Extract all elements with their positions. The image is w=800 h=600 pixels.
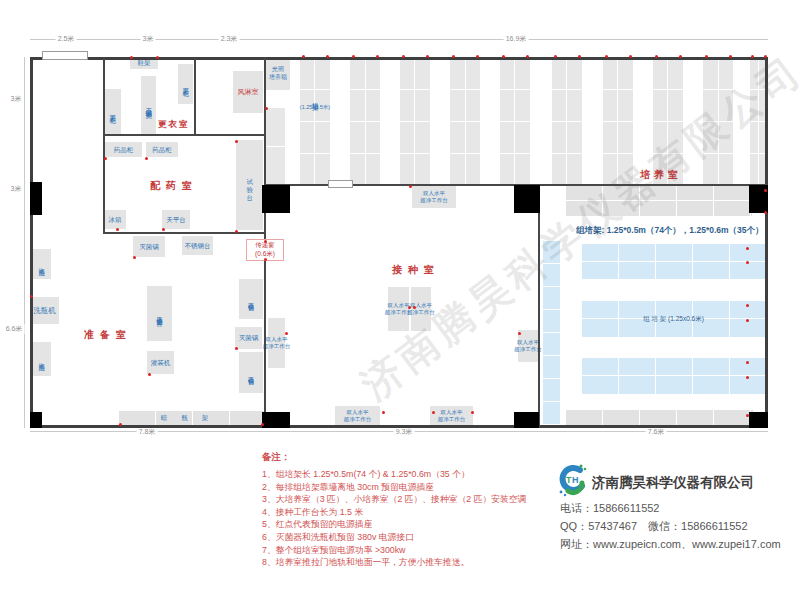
power-outlet-dot (746, 319, 749, 322)
power-outlet-dot (148, 373, 151, 376)
power-outlet-dot (746, 247, 749, 250)
company-logo-icon: T H (556, 462, 588, 498)
dim-bottom-1: 7.8米 (137, 427, 158, 437)
power-outlet-dot (729, 55, 732, 58)
company-name: 济南腾昊科学仪器有限公司 (592, 474, 754, 492)
note-item: 8、培养室推拉门地轨和地面一平，方便小推车推送。 (262, 556, 552, 569)
room-label-dispensing: 配药室 (150, 179, 198, 193)
power-outlet-dot (679, 55, 682, 58)
power-outlet-dot (471, 411, 474, 414)
outer-wall (30, 57, 768, 428)
power-outlet-dot (764, 189, 767, 192)
room-label-inoculation: 接种室 (392, 263, 440, 277)
dim-top-1: 2.5米 (56, 34, 77, 44)
power-outlet-dot (382, 411, 385, 414)
power-outlet-dot (235, 230, 238, 233)
power-outlet-dot (119, 423, 122, 426)
room-label-prep: 准备室 (84, 328, 132, 342)
door-entrance (42, 51, 88, 60)
rack-summary-text: 组培架: 1.25*0.5m（74个），1.25*0.6m（35个） (576, 225, 764, 237)
power-outlet-dot (409, 185, 412, 188)
note-item: 6、灭菌器和洗瓶机预留 380v 电源接口 (262, 531, 552, 544)
power-outlet-dot (426, 55, 429, 58)
pillar (30, 412, 42, 428)
power-outlet-dot (746, 376, 749, 379)
power-outlet-dot (746, 414, 749, 417)
power-outlet-dot (264, 240, 267, 243)
company-phone-line: 电话：15866611552 (560, 501, 659, 516)
wall-dispensing-bottom (103, 232, 266, 234)
power-outlet-dot (235, 347, 238, 350)
power-outlet-dot (751, 55, 754, 58)
power-outlet-dot (629, 55, 632, 58)
power-outlet-dot (261, 423, 264, 426)
power-outlet-dot (133, 256, 136, 259)
power-outlet-dot (476, 55, 479, 58)
pillar (30, 182, 42, 215)
power-outlet-dot (30, 295, 33, 298)
dimension-line-left (24, 57, 25, 428)
wall-changing-left (103, 57, 105, 234)
power-outlet-dot (502, 55, 505, 58)
power-outlet-dot (130, 56, 133, 59)
power-outlet-dot (764, 211, 767, 214)
power-outlet-dot (413, 306, 416, 309)
room-label-culture: 培养室 (640, 168, 682, 182)
power-outlet-dot (764, 55, 767, 58)
power-outlet-dot (145, 157, 148, 160)
power-outlet-dot (302, 55, 305, 58)
power-outlet-dot (156, 56, 159, 59)
wall-inoculation-right (538, 185, 540, 428)
pillar (514, 412, 539, 428)
floor-plan-page: 2.5米 3米 2.3米 16.9米 3米 3米 6.6米 7.8米 9.3米 … (0, 0, 800, 600)
dim-top-4: 16.9米 (504, 34, 529, 44)
power-outlet-dot (376, 55, 379, 58)
power-outlet-dot (746, 304, 749, 307)
pillar (749, 412, 768, 428)
note-item: 1、组培架长 1.25*0.5m(74 个) & 1.25*0.6m（35 个） (262, 468, 552, 481)
dim-left-1: 3米 (9, 94, 24, 104)
svg-text:H: H (572, 475, 579, 485)
note-item: 7、整个组培室预留电源功率 >300kw (262, 544, 552, 557)
power-outlet-dot (655, 55, 658, 58)
power-outlet-dot (408, 306, 411, 309)
power-outlet-dot (605, 55, 608, 58)
pillar (262, 185, 290, 213)
company-web-line: 网址：www.zupeicn.com、www.zupei17.com (560, 537, 781, 552)
dim-bottom-2: 9.3米 (394, 427, 415, 437)
pillar (514, 185, 540, 213)
note-item: 4、接种工作台长为 1.5 米 (262, 506, 552, 519)
dim-top-3: 2.3米 (219, 34, 240, 44)
notes-heading: 备注： (262, 451, 552, 464)
power-outlet-dot (432, 411, 435, 414)
power-outlet-dot (452, 55, 455, 58)
power-outlet-dot (578, 55, 581, 58)
note-item: 3、大培养室（3 匹）、小培养室（2 匹）、接种室（2 匹）安装空调 (262, 493, 552, 506)
power-outlet-dot (518, 332, 521, 335)
power-outlet-dot (746, 361, 749, 364)
dim-bottom-3: 7.6米 (646, 427, 667, 437)
dim-top-2: 3米 (141, 34, 156, 44)
dim-left-3: 6.6米 (4, 324, 25, 334)
pillar (262, 412, 290, 428)
power-outlet-dot (352, 55, 355, 58)
power-outlet-dot (746, 261, 749, 264)
notes-block: 备注： 1、组培架长 1.25*0.5m(74 个) & 1.25*0.6m（3… (262, 451, 552, 569)
power-outlet-dot (705, 55, 708, 58)
power-outlet-dot (265, 107, 268, 110)
dim-left-2: 3米 (9, 184, 24, 194)
power-outlet-dot (104, 157, 107, 160)
rack-column-label: 组培架 (1.25x0.5米) (296, 86, 334, 111)
power-outlet-dot (264, 258, 267, 261)
power-outlet-dot (116, 228, 119, 231)
power-outlet-dot (402, 55, 405, 58)
company-qq-line: QQ：57437467 微信：15866611552 (560, 519, 748, 534)
room-label-changing: 更衣室 (158, 119, 190, 131)
power-outlet-dot (326, 55, 329, 58)
note-item: 5、红点代表预留的电源插座 (262, 518, 552, 531)
power-outlet-dot (235, 140, 238, 143)
power-outlet-dot (526, 55, 529, 58)
wall-changing-bottom (103, 134, 266, 136)
wall-changing-right (194, 57, 196, 136)
door-inoculation (328, 180, 353, 188)
power-outlet-dot (285, 332, 288, 335)
power-outlet-dot (554, 55, 557, 58)
power-outlet-dot (162, 228, 165, 231)
note-item: 2、每排组培架靠墙离地 30cm 预留电源插座 (262, 481, 552, 494)
